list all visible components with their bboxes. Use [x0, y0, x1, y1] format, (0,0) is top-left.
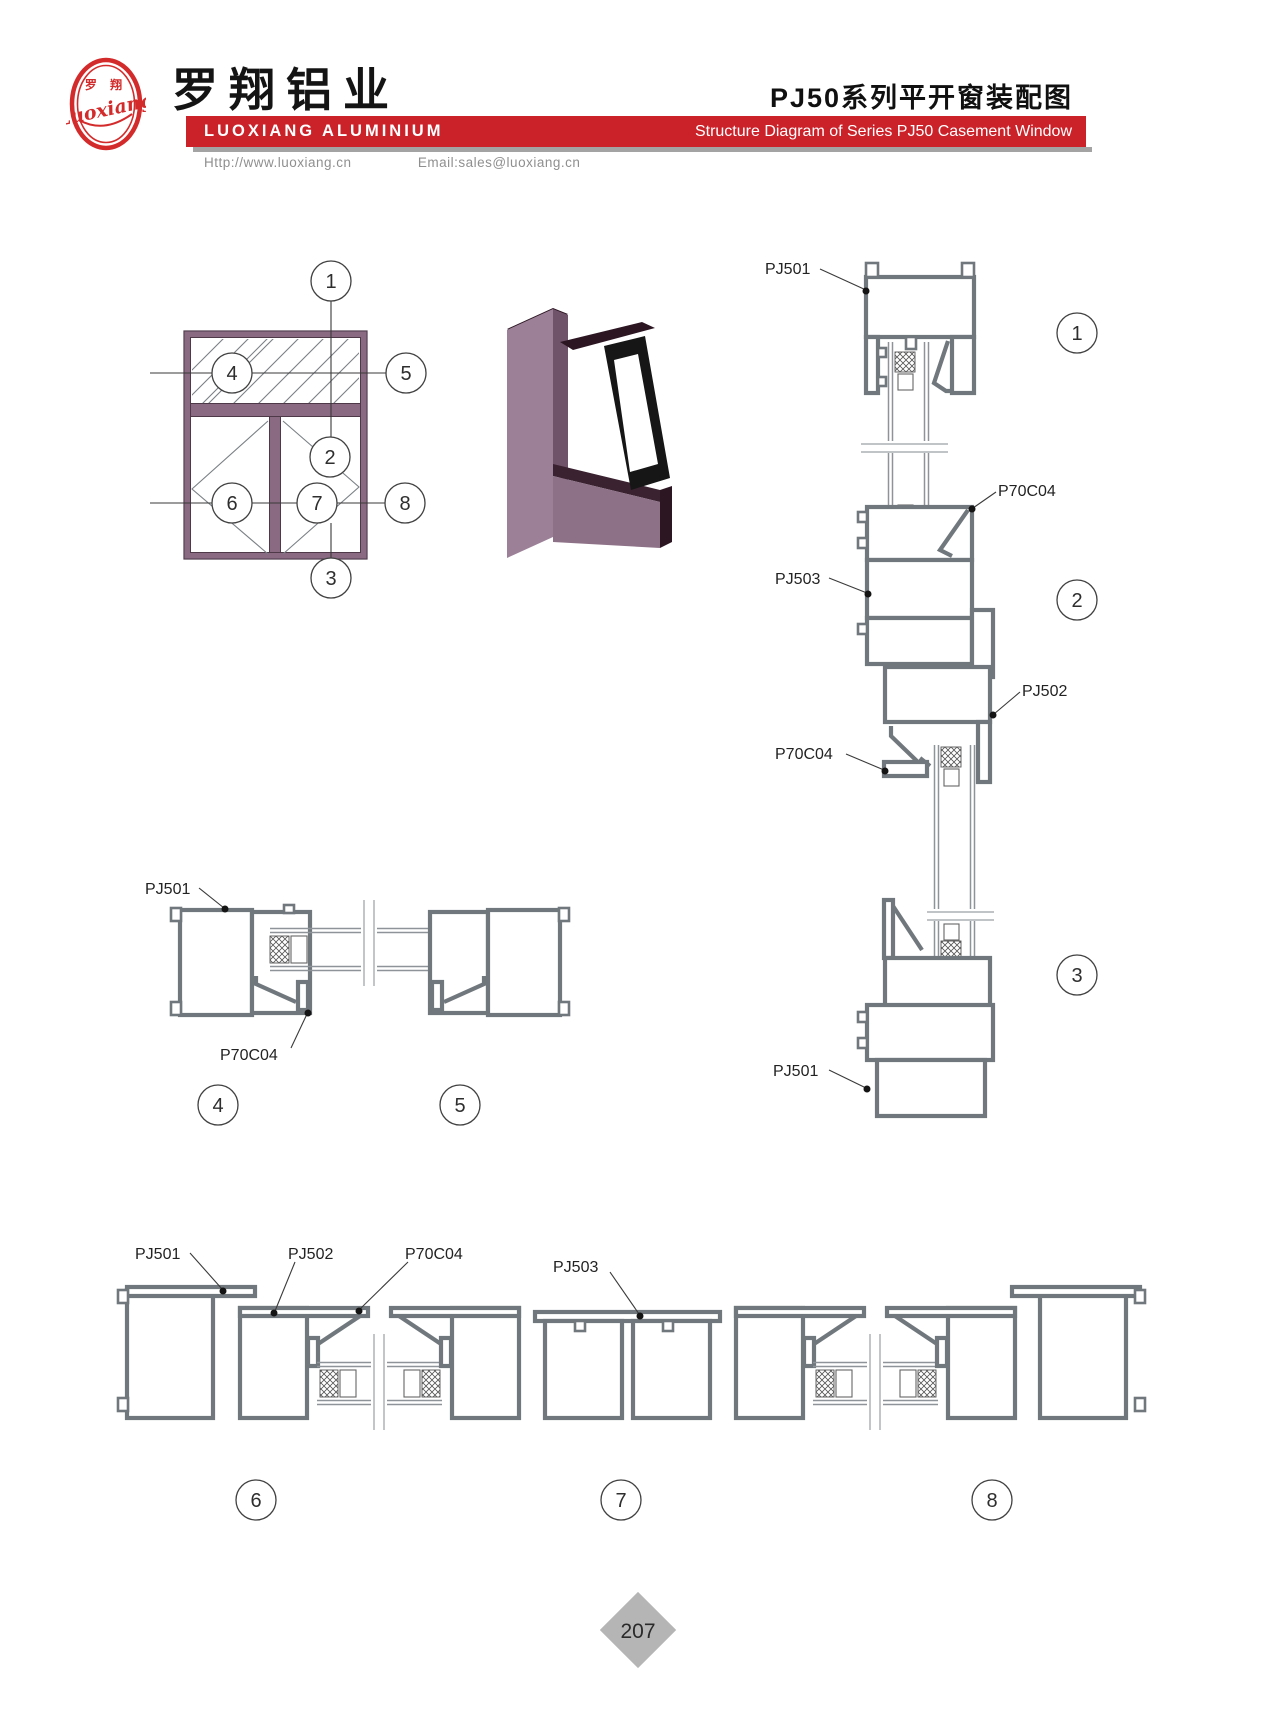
svg-text:P70C04: P70C04: [775, 746, 833, 763]
svg-text:5: 5: [454, 1095, 465, 1117]
logo-characters: 罗 翔: [85, 77, 127, 92]
section-callout-3: 3: [1057, 955, 1097, 995]
horizontal-section-bottom: PJ501 PJ502 P70C04 PJ503 6 7 8: [118, 1246, 1145, 1520]
profile-3d-render: [507, 308, 672, 558]
page-number: 207: [620, 1620, 655, 1643]
elevation-callout-7: 7: [297, 483, 337, 523]
svg-text:8: 8: [986, 1490, 997, 1512]
svg-text:PJ502: PJ502: [1022, 683, 1067, 700]
brand-title-cn: 罗翔铝业: [172, 54, 400, 120]
label-pj501-jamb: PJ501: [145, 881, 229, 913]
svg-text:PJ501: PJ501: [765, 261, 810, 278]
window-elevation: 1 4 5 2 6 7 8 3: [148, 261, 426, 598]
section-callout-8: 8: [972, 1480, 1012, 1520]
horizontal-section-top: PJ501 P70C04 4 5: [145, 881, 569, 1125]
label-p70c04-lower: P70C04: [775, 746, 889, 775]
svg-text:3: 3: [325, 568, 336, 590]
svg-text:4: 4: [226, 363, 237, 385]
contact-line: Http://www.luoxiang.cn Email:sales@luoxi…: [204, 155, 642, 170]
elevation-callout-6: 6: [212, 483, 252, 523]
svg-text:PJ502: PJ502: [288, 1246, 333, 1263]
svg-text:1: 1: [1071, 323, 1082, 345]
elevation-callout-8: 8: [385, 483, 425, 523]
elevation-callout-1: 1: [311, 261, 351, 301]
svg-text:P70C04: P70C04: [998, 483, 1056, 500]
svg-text:6: 6: [226, 493, 237, 515]
section-callout-2: 2: [1057, 580, 1097, 620]
section-callout-7: 7: [601, 1480, 641, 1520]
label-p70c04-upper: P70C04: [969, 483, 1056, 513]
svg-text:3: 3: [1071, 965, 1082, 987]
svg-text:5: 5: [400, 363, 411, 385]
website-url: Http://www.luoxiang.cn: [204, 155, 352, 170]
label-pj501-head: PJ501: [765, 261, 870, 295]
svg-text:PJ501: PJ501: [145, 881, 190, 898]
label-p70c04-jamb: P70C04: [220, 1010, 312, 1065]
svg-text:4: 4: [212, 1095, 223, 1117]
section-callout-4: 4: [198, 1085, 238, 1125]
section-callout-6: 6: [236, 1480, 276, 1520]
svg-text:2: 2: [324, 447, 335, 469]
elevation-callout-5: 5: [386, 353, 426, 393]
svg-text:P70C04: P70C04: [220, 1047, 278, 1064]
section-callout-1: 1: [1057, 313, 1097, 353]
technical-drawing: 1 4 5 2 6 7 8 3: [0, 0, 1277, 1721]
vertical-section: PJ501 P70C04 PJ503 PJ502 P70C04 PJ501 1 …: [765, 261, 1097, 1116]
svg-text:7: 7: [615, 1490, 626, 1512]
svg-text:6: 6: [250, 1490, 261, 1512]
label-p70c04-bottom: P70C04: [356, 1246, 463, 1315]
doc-title-cn: PJ50系列平开窗装配图: [770, 76, 1073, 115]
svg-text:PJ501: PJ501: [773, 1063, 818, 1080]
email-address: Email:sales@luoxiang.cn: [418, 155, 581, 170]
header-bar-shadow: [193, 147, 1092, 152]
mullion-bar: [270, 417, 281, 553]
label-pj502: PJ502: [990, 683, 1068, 719]
catalog-page: 1 4 5 2 6 7 8 3: [0, 0, 1277, 1721]
elevation-callout-4: 4: [212, 353, 252, 393]
transom-bar: [191, 404, 361, 417]
brand-title-en: LUOXIANG ALUMINIUM: [204, 122, 443, 141]
label-pj503: PJ503: [775, 571, 872, 598]
svg-text:7: 7: [311, 493, 322, 515]
svg-text:1: 1: [325, 271, 336, 293]
section-callout-5: 5: [440, 1085, 480, 1125]
company-logo: 罗 翔 Luoxiang: [66, 56, 146, 152]
svg-text:PJ503: PJ503: [775, 571, 820, 588]
svg-text:PJ503: PJ503: [553, 1259, 598, 1276]
label-pj501-sill: PJ501: [773, 1063, 871, 1093]
elevation-callout-2: 2: [310, 437, 350, 477]
page-number-diamond: 207: [600, 1592, 676, 1668]
doc-title-en: Structure Diagram of Series PJ50 Casemen…: [695, 123, 1072, 141]
glass-unit: [604, 336, 670, 490]
svg-text:8: 8: [399, 493, 410, 515]
header-red-bar: LUOXIANG ALUMINIUM Structure Diagram of …: [186, 116, 1086, 147]
svg-text:P70C04: P70C04: [405, 1246, 463, 1263]
svg-text:2: 2: [1071, 590, 1082, 612]
elevation-callout-3: 3: [311, 558, 351, 598]
svg-text:PJ501: PJ501: [135, 1246, 180, 1263]
